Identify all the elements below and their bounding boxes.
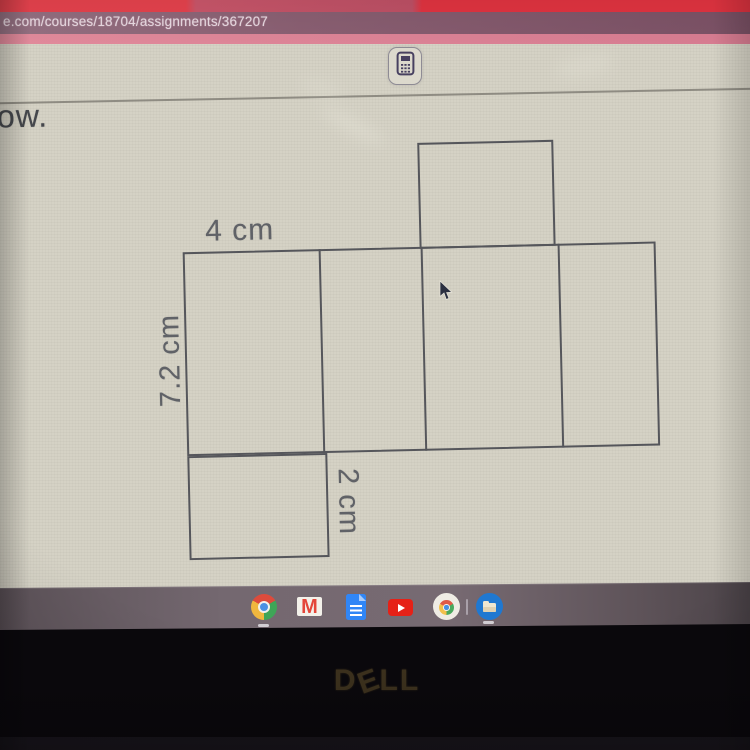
files-active-indicator (483, 621, 494, 624)
dimension-label-height: 7.2 cm (153, 300, 186, 421)
address-bar[interactable]: e.com/courses/18704/assignments/367207 (0, 12, 750, 34)
net-bottom-flap (187, 453, 329, 560)
gmail-m-letter: M (301, 597, 318, 617)
files-app-icon[interactable] (476, 593, 503, 620)
browser-tab-strip (0, 0, 750, 12)
cursor-arrow-icon (438, 280, 454, 307)
calculator-button[interactable] (388, 47, 422, 85)
dimension-label-width: 4 cm (205, 213, 275, 249)
page-header-strip (0, 34, 750, 44)
calculator-icon (396, 51, 415, 81)
chrome-app-icon[interactable] (433, 593, 460, 620)
gmail-icon[interactable]: M (297, 597, 322, 616)
prism-net-figure: 4 cm 7.2 cm 2 cm (145, 122, 685, 584)
dell-logo: DELL (329, 664, 425, 698)
toolbar-divider (0, 88, 750, 105)
taskbar-shelf (0, 582, 750, 630)
net-top-flap (417, 140, 555, 249)
laptop-screen: e.com/courses/18704/assignments/367207 o… (0, 0, 750, 592)
folder-icon (483, 603, 496, 612)
photo-of-laptop: e.com/courses/18704/assignments/367207 o… (0, 0, 750, 750)
google-docs-icon[interactable] (346, 594, 366, 620)
dimension-label-depth: 2 cm (333, 446, 365, 557)
question-text-partial: ow. (0, 98, 48, 136)
chrome-icon[interactable] (251, 594, 277, 620)
shelf-separator (466, 599, 468, 615)
laptop-hinge (0, 737, 750, 750)
youtube-icon[interactable] (388, 599, 413, 616)
chrome-mini-logo-icon (439, 600, 454, 615)
url-text: e.com/courses/18704/assignments/367207 (3, 14, 268, 29)
chrome-active-indicator (258, 624, 269, 627)
screen-smudge (554, 50, 617, 82)
